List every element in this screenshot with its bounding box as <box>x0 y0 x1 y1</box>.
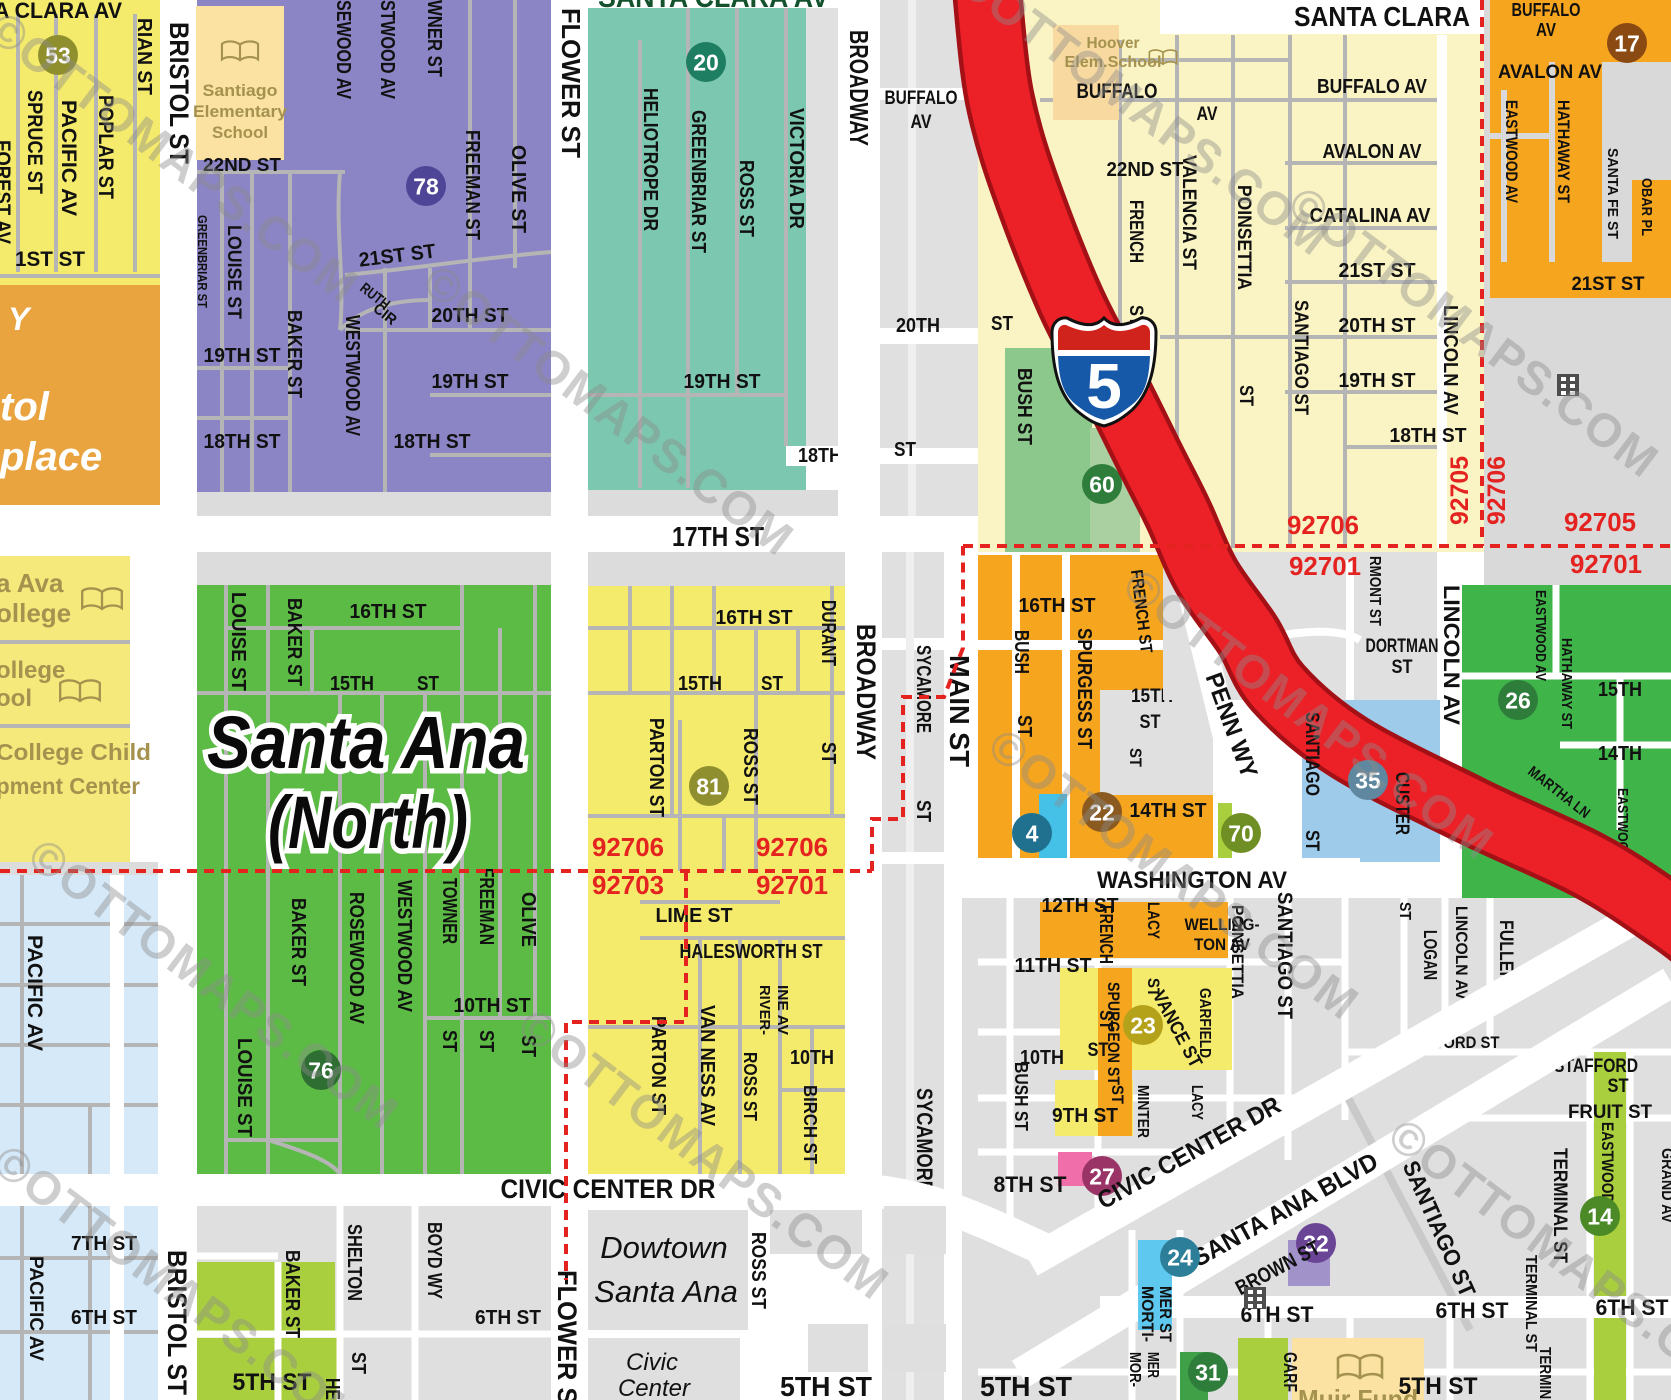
svg-text:92703: 92703 <box>592 870 664 900</box>
svg-text:SANTA CLARA AV: SANTA CLARA AV <box>598 0 829 14</box>
svg-text:ROSS ST: ROSS ST <box>739 728 761 805</box>
svg-text:HATHAWAY ST: HATHAWAY ST <box>1554 100 1573 204</box>
svg-text:(North): (North) <box>268 781 468 864</box>
svg-text:ST: ST <box>1396 902 1413 920</box>
svg-text:BAKER ST: BAKER ST <box>281 1250 303 1338</box>
svg-text:4: 4 <box>1026 820 1039 846</box>
svg-text:ST: ST <box>417 673 439 695</box>
svg-text:8TH ST: 8TH ST <box>994 1172 1068 1197</box>
svg-text:5: 5 <box>1086 350 1122 422</box>
svg-text:16TH ST: 16TH ST <box>1019 595 1096 617</box>
svg-text:BIRCH ST: BIRCH ST <box>800 1085 820 1164</box>
svg-text:MER ST: MER ST <box>1156 1286 1175 1343</box>
svg-text:10TH: 10TH <box>790 1047 834 1069</box>
svg-text:ST: ST <box>1608 1076 1629 1097</box>
svg-text:LOUISE ST: LOUISE ST <box>227 592 249 691</box>
svg-text:LINCOLN AV: LINCOLN AV <box>1439 585 1464 725</box>
svg-text:VICTORIA DR: VICTORIA DR <box>785 108 807 230</box>
svg-text:ROSEWOOD AV: ROSEWOOD AV <box>345 892 367 1025</box>
svg-text:SEWOOD AV: SEWOOD AV <box>332 0 354 100</box>
svg-text:HATHAWAY ST: HATHAWAY ST <box>1558 638 1575 729</box>
svg-text:BUFFALO AV: BUFFALO AV <box>1317 76 1428 98</box>
svg-text:MOR-: MOR- <box>1126 1352 1143 1387</box>
svg-text:ST: ST <box>1088 1040 1109 1061</box>
svg-text:ST: ST <box>1301 830 1322 851</box>
svg-text:FRENCH: FRENCH <box>1125 200 1146 263</box>
svg-text:AVALON AV: AVALON AV <box>1323 141 1423 163</box>
svg-text:FLOWER ST: FLOWER ST <box>552 1270 582 1400</box>
svg-text:pment Center: pment Center <box>0 773 140 799</box>
svg-text:GREENBRIAR ST: GREENBRIAR ST <box>195 215 210 308</box>
svg-text:70: 70 <box>1228 820 1254 846</box>
svg-text:SYCAMORE: SYCAMORE <box>912 645 934 733</box>
svg-text:DURANT: DURANT <box>817 600 839 666</box>
svg-text:60: 60 <box>1089 471 1115 497</box>
svg-text:BOYD WY: BOYD WY <box>423 1222 445 1300</box>
svg-text:92706: 92706 <box>756 832 828 862</box>
svg-text:FREEMAN ST: FREEMAN ST <box>461 130 483 240</box>
svg-text:SANTA FE ST: SANTA FE ST <box>1604 148 1621 239</box>
svg-text:SANTIAGO ST: SANTIAGO ST <box>1290 300 1311 415</box>
svg-text:WESTWOOD AV: WESTWOOD AV <box>341 315 363 437</box>
svg-text:PACIFIC AV: PACIFIC AV <box>25 1256 46 1361</box>
svg-text:LOGAN: LOGAN <box>1420 930 1440 980</box>
svg-text:24: 24 <box>1167 1244 1193 1270</box>
svg-text:ST: ST <box>912 800 934 822</box>
svg-text:10TH ST: 10TH ST <box>454 995 531 1017</box>
svg-text:FRENCH: FRENCH <box>1096 905 1116 964</box>
svg-text:AVALON AV: AVALON AV <box>1498 62 1602 83</box>
svg-text:92705: 92705 <box>1564 507 1636 537</box>
svg-text:MORTI-: MORTI- <box>1138 1286 1157 1342</box>
svg-text:WESTWOOD AV: WESTWOOD AV <box>393 880 415 1013</box>
svg-text:LACY: LACY <box>1188 1085 1205 1120</box>
svg-text:Center: Center <box>618 1375 691 1400</box>
svg-text:15TH: 15TH <box>1598 679 1642 701</box>
svg-text:1ST ST: 1ST ST <box>15 248 85 271</box>
svg-text:23: 23 <box>1130 1012 1156 1038</box>
svg-text:VAN NESS AV: VAN NESS AV <box>696 1005 718 1127</box>
svg-text:TERMINAL ST: TERMINAL ST <box>1522 1255 1539 1352</box>
svg-text:PARTON ST: PARTON ST <box>645 718 667 817</box>
svg-text:EASTWOOD AV: EASTWOOD AV <box>1502 100 1521 204</box>
svg-text:Y: Y <box>8 301 32 337</box>
svg-text:LINCOLN AV: LINCOLN AV <box>1452 906 1471 1001</box>
svg-text:School: School <box>212 123 268 142</box>
svg-text:BAKER ST: BAKER ST <box>283 310 305 398</box>
svg-text:16TH ST: 16TH ST <box>350 601 427 623</box>
svg-text:19TH ST: 19TH ST <box>684 371 761 393</box>
svg-text:ST: ST <box>438 1030 460 1052</box>
svg-text:Civic: Civic <box>626 1349 678 1376</box>
svg-text:19TH ST: 19TH ST <box>1339 370 1416 392</box>
svg-text:MINTER: MINTER <box>1134 1085 1151 1138</box>
svg-text:21ST ST: 21ST ST <box>1572 274 1645 295</box>
svg-text:11TH ST: 11TH ST <box>1015 955 1092 977</box>
svg-text:92701: 92701 <box>1570 549 1642 579</box>
svg-text:AV: AV <box>1536 20 1556 40</box>
svg-text:FOREST AV: FOREST AV <box>0 140 14 244</box>
svg-text:ROSS ST: ROSS ST <box>740 1052 760 1121</box>
svg-text:18TH ST: 18TH ST <box>204 431 281 453</box>
svg-text:18TH ST: 18TH ST <box>394 431 471 453</box>
svg-text:ST: ST <box>1392 657 1413 678</box>
svg-text:14: 14 <box>1587 1203 1613 1229</box>
svg-text:SPURGEON ST: SPURGEON ST <box>1104 982 1123 1086</box>
svg-text:PACIFIC AV: PACIFIC AV <box>57 100 80 216</box>
svg-text:ST: ST <box>1108 1085 1127 1105</box>
svg-text:15TH: 15TH <box>330 673 374 695</box>
svg-text:WNER ST: WNER ST <box>423 0 445 77</box>
svg-text:BUSH ST: BUSH ST <box>1011 1062 1031 1131</box>
svg-text:ollege: ollege <box>0 657 65 684</box>
svg-text:17: 17 <box>1614 30 1640 56</box>
svg-text:GREENBRIAR ST: GREENBRIAR ST <box>687 110 709 253</box>
svg-text:BAKER ST: BAKER ST <box>287 898 309 986</box>
svg-text:TOWNER: TOWNER <box>438 878 460 944</box>
svg-text:20: 20 <box>693 49 719 75</box>
svg-text:BROADWAY: BROADWAY <box>844 30 874 146</box>
svg-text:place: place <box>0 435 102 479</box>
svg-text:92706: 92706 <box>1287 510 1359 540</box>
svg-text:FRUIT ST: FRUIT ST <box>1568 1102 1652 1123</box>
svg-text:HALESWORTH ST: HALESWORTH ST <box>680 941 823 963</box>
svg-text:81: 81 <box>696 773 722 799</box>
svg-text:MER: MER <box>1144 1352 1161 1378</box>
svg-text:STWOOD AV: STWOOD AV <box>376 0 398 100</box>
svg-text:92701: 92701 <box>1289 551 1361 581</box>
svg-text:College Child: College Child <box>0 739 151 765</box>
svg-text:GARF: GARF <box>1280 1352 1300 1392</box>
svg-text:ST: ST <box>761 673 783 695</box>
svg-text:BUFFALO: BUFFALO <box>1512 0 1581 20</box>
svg-text:GRAND AV: GRAND AV <box>1658 1148 1671 1224</box>
svg-text:ST: ST <box>1140 712 1161 733</box>
svg-text:INE AV: INE AV <box>774 985 791 1035</box>
svg-text:EASTWOOD AV: EASTWOOD AV <box>1532 590 1549 681</box>
svg-text:RIAN ST: RIAN ST <box>133 18 155 95</box>
svg-text:ST: ST <box>475 1030 497 1052</box>
svg-text:SPRUCE ST: SPRUCE ST <box>23 90 46 194</box>
svg-text:HELIOTROPE DR: HELIOTROPE DR <box>639 88 661 231</box>
svg-text:Santa Ana: Santa Ana <box>594 1274 738 1309</box>
svg-text:15TH: 15TH <box>678 673 722 695</box>
svg-text:LIME ST: LIME ST <box>656 905 733 927</box>
svg-text:5TH ST: 5TH ST <box>1399 1373 1478 1400</box>
svg-text:6TH ST: 6TH ST <box>1436 1298 1510 1323</box>
svg-text:6TH ST: 6TH ST <box>475 1307 541 1329</box>
svg-text:ROSS ST: ROSS ST <box>747 1232 769 1309</box>
svg-text:ST: ST <box>347 1352 369 1374</box>
svg-text:ST: ST <box>894 439 916 461</box>
svg-text:LOUISE ST: LOUISE ST <box>233 1038 255 1137</box>
svg-text:20TH ST: 20TH ST <box>1339 315 1416 337</box>
svg-text:Santiago: Santiago <box>203 81 278 100</box>
svg-text:14TH: 14TH <box>1598 743 1642 765</box>
svg-text:ST: ST <box>817 742 839 764</box>
svg-text:ST: ST <box>1126 748 1145 768</box>
svg-text:AV: AV <box>911 112 932 133</box>
svg-text:ROSS ST: ROSS ST <box>735 160 757 237</box>
svg-text:26: 26 <box>1505 687 1531 713</box>
svg-text:RIVER-: RIVER- <box>756 985 773 1035</box>
svg-text:31: 31 <box>1195 1359 1221 1385</box>
svg-text:BUSH ST: BUSH ST <box>1013 368 1035 445</box>
svg-text:78: 78 <box>413 173 439 199</box>
svg-text:CIVIC CENTER DR: CIVIC CENTER DR <box>501 1174 716 1204</box>
svg-text:BUFFALO: BUFFALO <box>885 88 958 109</box>
svg-text:PACIFIC AV: PACIFIC AV <box>23 935 46 1051</box>
svg-text:TERMINA: TERMINA <box>1536 1347 1553 1400</box>
svg-text:5TH ST: 5TH ST <box>980 1371 1072 1400</box>
svg-text:92706: 92706 <box>592 832 664 862</box>
svg-text:Santa Ana: Santa Ana <box>207 701 525 784</box>
svg-text:OLIVE: OLIVE <box>517 892 539 947</box>
svg-text:ST: ST <box>991 313 1013 335</box>
svg-text:92706: 92706 <box>1483 456 1511 525</box>
svg-text:9TH ST: 9TH ST <box>1052 1105 1118 1127</box>
svg-text:a Ava: a Ava <box>0 568 64 598</box>
svg-text:Elementary: Elementary <box>193 102 288 121</box>
svg-text:FLOWER ST: FLOWER ST <box>556 8 586 158</box>
svg-text:OLIVE ST: OLIVE ST <box>507 145 529 233</box>
svg-text:20TH: 20TH <box>896 315 940 337</box>
svg-text:18TH ST: 18TH ST <box>1390 425 1467 447</box>
svg-text:92705: 92705 <box>1446 456 1474 525</box>
svg-text:5TH ST: 5TH ST <box>780 1371 872 1400</box>
svg-text:BROADWAY: BROADWAY <box>851 624 881 760</box>
svg-text:92701: 92701 <box>756 870 828 900</box>
svg-text:6TH ST: 6TH ST <box>71 1307 137 1329</box>
svg-text:19TH ST: 19TH ST <box>204 345 281 367</box>
svg-text:SPURGESS ST: SPURGESS ST <box>1073 628 1095 749</box>
svg-text:ollege: ollege <box>0 598 71 628</box>
svg-text:ool: ool <box>0 685 32 712</box>
svg-text:18TH: 18TH <box>798 445 842 467</box>
svg-text:19TH ST: 19TH ST <box>432 371 509 393</box>
svg-text:RMONT ST: RMONT ST <box>1366 556 1383 626</box>
svg-text:GARFIELD: GARFIELD <box>1196 988 1213 1058</box>
svg-text:FREEMAN: FREEMAN <box>475 868 497 945</box>
svg-text:BAKER ST: BAKER ST <box>283 598 305 686</box>
svg-text:DORTMAN: DORTMAN <box>1366 636 1439 657</box>
svg-text:Dowtown: Dowtown <box>600 1230 728 1265</box>
svg-text:SHELTON: SHELTON <box>343 1224 365 1301</box>
svg-text:LACY: LACY <box>1144 902 1163 940</box>
svg-text:BUSH: BUSH <box>1010 630 1032 674</box>
svg-text:MAIN ST: MAIN ST <box>944 655 975 767</box>
svg-text:OBAR PL: OBAR PL <box>1638 178 1655 236</box>
svg-text:16TH ST: 16TH ST <box>716 607 793 629</box>
svg-text:SANTA CLARA: SANTA CLARA <box>1294 1 1470 32</box>
svg-text:ST: ST <box>1235 385 1256 406</box>
svg-text:tol: tol <box>0 385 50 429</box>
